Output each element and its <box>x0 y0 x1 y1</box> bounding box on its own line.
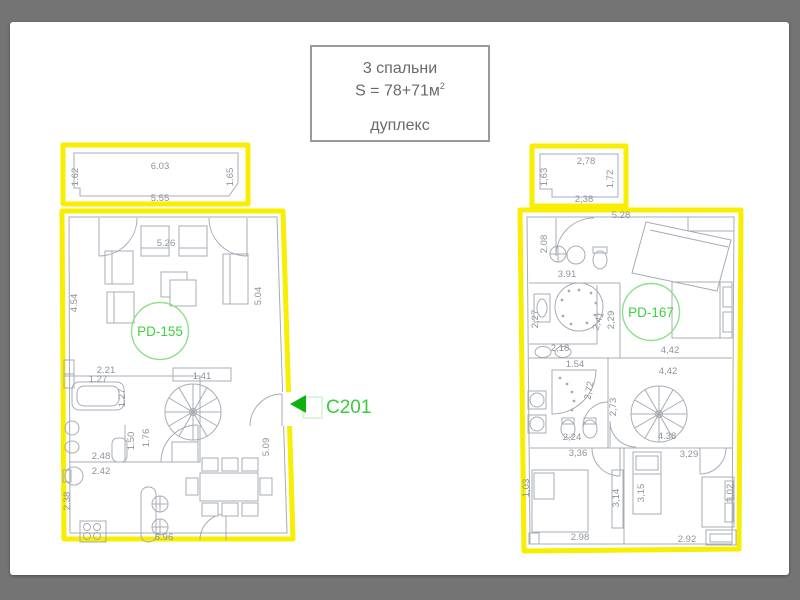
dim-label: 1.76 <box>141 429 152 448</box>
dim-label: 1,03 <box>521 479 532 498</box>
dim-label: 2.48 <box>92 451 111 462</box>
living-room-furniture <box>105 226 248 381</box>
dim-label: 1.41 <box>193 371 212 382</box>
dim-label: 2,41 <box>591 311 607 332</box>
dim-label: 1,72 <box>605 170 616 189</box>
dim-label: 4,42 <box>659 366 678 377</box>
dim-label: 3,02 <box>725 484 736 503</box>
dim-label: 2,73 <box>608 398 619 417</box>
dim-label: 1.27 <box>89 374 108 385</box>
dim-label: 3,29 <box>680 449 699 460</box>
unit-right-label: PD-167 <box>623 284 680 341</box>
unit-left-label: PD-155 <box>132 303 189 360</box>
spiral-stair-left <box>165 384 221 440</box>
dim-label: 2,78 <box>577 156 596 167</box>
dim-label: 5.09 <box>261 438 272 457</box>
unit-id-label: PD-167 <box>628 305 674 320</box>
entrance-marker: C201 <box>290 395 371 418</box>
dim-label: 2,29 <box>606 311 617 330</box>
dim-label: 5.55 <box>151 193 170 204</box>
dim-label: 5.28 <box>612 210 631 221</box>
dim-label: 6.03 <box>151 161 170 172</box>
dim-label: 2.38 <box>62 492 73 511</box>
dim-label: 4.54 <box>69 294 80 313</box>
dim-label: 1.27 <box>117 389 128 408</box>
entrance-arrow-icon <box>290 395 306 413</box>
dim-label: 2,27 <box>530 310 541 329</box>
dim-label: 5.96 <box>155 532 174 543</box>
dim-label: 2,18 <box>551 343 570 354</box>
dim-label: 1.65 <box>225 168 236 187</box>
dim-label: 2.42 <box>92 466 111 477</box>
dim-label: 1,63 <box>539 168 550 187</box>
dim-label: 3,14 <box>611 489 622 508</box>
dim-label: 2,24 <box>563 432 582 443</box>
dim-label: 1.62 <box>70 168 81 187</box>
dim-label: 2,72 <box>583 381 597 401</box>
dim-label: 2,38 <box>575 194 594 205</box>
unit-left-balcony: 6.03 1.62 1.65 5.55 <box>63 145 248 204</box>
dim-label: 4.38 <box>658 431 677 442</box>
dim-label: 5.04 <box>253 287 264 306</box>
dim-label: 2.98 <box>571 532 590 543</box>
dim-label: 2.92 <box>678 534 697 545</box>
unit-right-balcony: 2,78 1,63 1,72 2,38 <box>532 146 626 206</box>
dim-label: 4,42 <box>661 345 680 356</box>
dim-label: 1.50 <box>126 432 137 451</box>
dim-label: 3,36 <box>569 448 588 459</box>
dim-label: 5.26 <box>157 238 176 249</box>
floorplan-drawing: 6.03 1.62 1.65 5.55 <box>0 0 800 600</box>
entrance-code-label: C201 <box>326 397 371 418</box>
dim-label: 1.54 <box>566 359 585 370</box>
dim-label: 3,15 <box>636 484 647 503</box>
dim-label: 3.91 <box>558 269 577 280</box>
dim-label: 2.08 <box>539 235 550 254</box>
unit-id-label: PD-155 <box>137 324 183 339</box>
